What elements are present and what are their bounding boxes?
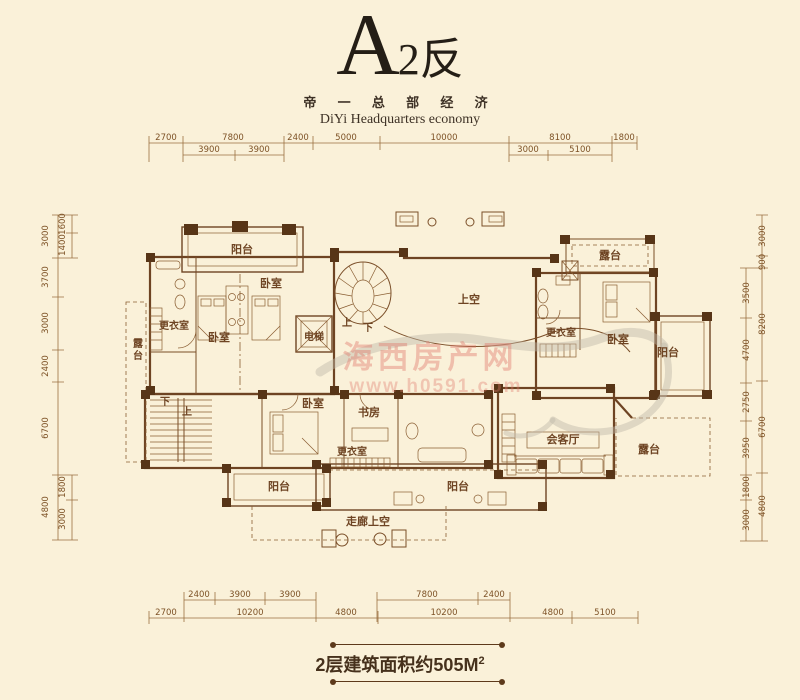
room-label-terrace-top-right: 露台 (599, 248, 621, 262)
dim-label: 7800 (222, 133, 244, 143)
room-label-bedroom-lower: 卧室 (302, 396, 324, 410)
room-label-bedroom-upper-left: 卧室 (260, 276, 282, 290)
spiral-staircase (335, 262, 391, 324)
room-label-terrace-left: 露台 (131, 337, 143, 362)
dim-label: 3950 (742, 437, 752, 459)
dim-label: 6700 (758, 416, 768, 438)
room-label-corridor-void: 走廊上空 (345, 514, 390, 528)
dim-label: 4800 (335, 608, 357, 618)
dim-label: 900 (758, 254, 768, 270)
dim-label: 2400 (287, 133, 309, 143)
dim-label: 1400 (58, 234, 68, 256)
footer-line-bottom (333, 681, 502, 682)
dim-label: 1800 (58, 476, 68, 498)
dim-label: 1600 (58, 213, 68, 235)
dim-label: 4800 (41, 496, 51, 518)
dim-label: 3000 (58, 508, 68, 530)
dim-label: 3000 (758, 225, 768, 247)
dim-label: 3700 (41, 266, 51, 288)
room-label-bedroom-right: 卧室 (607, 332, 629, 346)
dimension-chain-right: 3500 4700 2750 3950 1800 3000 3000 900 8… (740, 215, 768, 541)
dim-label: 5100 (569, 145, 591, 155)
dim-label: 4800 (542, 608, 564, 618)
room-label-closet-upper-left: 更衣室 (159, 319, 189, 332)
room-label-elevator: 电梯 (304, 330, 324, 343)
dim-label: 2400 (41, 355, 51, 377)
dim-label: 2750 (742, 391, 752, 413)
floorplan-page: A2反 帝 一 总 部 经 济 DiYi Headquarters econom… (0, 0, 800, 700)
label-spiral-up: 上 (342, 316, 352, 329)
balcony-bottom-center (316, 464, 546, 510)
room-label-bedroom-lower-left: 卧室 (208, 330, 230, 344)
dim-label: 1800 (613, 133, 635, 143)
dim-label: 3900 (229, 590, 251, 600)
dim-label: 2400 (188, 590, 210, 600)
floor-plan-drawing: 2700 7800 2400 5000 10000 8100 1800 3900… (0, 0, 800, 700)
room-label-balcony-bottom-center: 阳台 (447, 479, 469, 493)
dim-label: 3900 (279, 590, 301, 600)
dim-label: 3000 (517, 145, 539, 155)
room-label-balcony-bottom-left: 阳台 (268, 479, 290, 493)
dim-label: 3000 (742, 509, 752, 531)
dim-label: 4800 (758, 495, 768, 517)
room-label-balcony-right: 阳台 (657, 345, 679, 359)
footer-line-top (333, 644, 502, 645)
area-label: 2层建筑面积约505M (315, 655, 478, 675)
area-superscript: 2 (478, 655, 484, 667)
dim-label: 10000 (430, 133, 457, 143)
dimension-chain-left: 3000 3700 3000 2400 6700 4800 1600 1400 … (41, 213, 78, 540)
dimension-chain-top: 2700 7800 2400 5000 10000 8100 1800 3900… (149, 133, 637, 162)
dim-label: 2700 (155, 608, 177, 618)
dim-label: 3000 (41, 225, 51, 247)
dim-label: 6700 (41, 417, 51, 439)
watermark: 海西房产网 www.h0591.com (343, 340, 523, 397)
dim-label: 1800 (742, 476, 752, 498)
dim-label: 7800 (416, 590, 438, 600)
dimension-chain-bottom: 2400 3900 3900 7800 2400 2700 10200 4800… (149, 590, 638, 624)
dim-label: 3500 (742, 282, 752, 304)
dim-label: 3900 (198, 145, 220, 155)
label-stair-up: 上 (182, 405, 192, 418)
room-label-balcony-top: 阳台 (231, 242, 253, 256)
terrace-left-strip (126, 302, 146, 462)
area-text: 2层建筑面积约505M2 (0, 651, 800, 677)
room-label-study: 书房 (358, 405, 380, 419)
dim-label: 5000 (335, 133, 357, 143)
dim-label: 8200 (758, 313, 768, 335)
dim-label: 3000 (41, 312, 51, 334)
watermark-url: www.h0591.com (348, 376, 522, 397)
label-spiral-down: 下 (363, 322, 373, 334)
dim-label: 10200 (430, 608, 457, 618)
dim-label: 8100 (549, 133, 571, 143)
room-label-reception: 会客厅 (547, 432, 580, 446)
dim-label: 2400 (483, 590, 505, 600)
room-label-closet-right: 更衣室 (546, 326, 576, 339)
room-label-terrace-bottom-right: 露台 (638, 442, 660, 456)
dim-label: 3900 (248, 145, 270, 155)
watermark-name: 海西房产网 (343, 340, 518, 375)
dim-label: 10200 (236, 608, 263, 618)
label-stair-down: 下 (160, 396, 170, 408)
room-label-closet-lower: 更衣室 (337, 445, 367, 458)
dim-label: 4700 (742, 339, 752, 361)
dim-label: 5100 (594, 608, 616, 618)
room-label-void: 上空 (458, 292, 480, 306)
dim-label: 2700 (155, 133, 177, 143)
